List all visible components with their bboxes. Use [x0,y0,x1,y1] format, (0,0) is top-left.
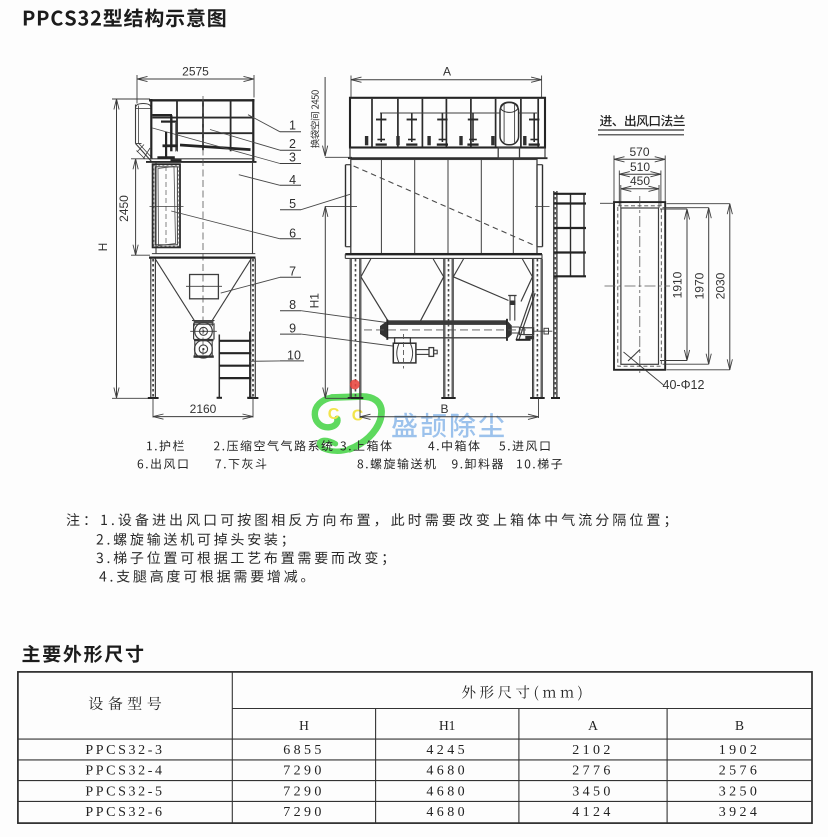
svg-text:4124: 4124 [572,805,614,820]
svg-text:H: H [299,718,309,733]
svg-text:10: 10 [287,348,301,362]
svg-text:7290: 7290 [283,764,325,779]
svg-text:4: 4 [289,173,296,187]
svg-text:3924: 3924 [719,805,761,820]
svg-text:5: 5 [289,197,296,211]
svg-text:PPCS32-5: PPCS32-5 [85,784,164,799]
svg-text:PPCS32-3: PPCS32-3 [85,743,164,758]
svg-text:PPCS32-4: PPCS32-4 [85,764,164,779]
svg-text:9: 9 [289,321,296,335]
svg-text:1: 1 [289,118,296,132]
svg-text:510: 510 [630,160,650,174]
svg-text:8: 8 [289,298,296,312]
svg-text:570: 570 [629,145,649,159]
svg-text:2450: 2450 [117,195,131,222]
svg-text:H: H [96,243,110,252]
svg-text:3450: 3450 [572,784,614,799]
svg-text:7290: 7290 [283,784,325,799]
svg-text:H1: H1 [439,718,456,733]
svg-text:7290: 7290 [283,805,325,820]
svg-text:2575: 2575 [182,64,209,78]
svg-text:7: 7 [289,264,296,278]
svg-text:4245: 4245 [426,743,468,758]
svg-text:4680: 4680 [426,784,468,799]
svg-text:2160: 2160 [190,402,217,416]
svg-text:PPCS32-6: PPCS32-6 [85,805,164,820]
svg-text:2776: 2776 [572,764,614,779]
svg-text:2576: 2576 [719,764,761,779]
svg-text:4680: 4680 [426,805,468,820]
svg-text:B: B [735,718,744,733]
svg-text:H1: H1 [308,293,322,309]
svg-text:B: B [440,402,448,416]
svg-text:1970: 1970 [692,272,706,299]
svg-text:2030: 2030 [714,272,728,299]
svg-text:4680: 4680 [426,764,468,779]
svg-text:3250: 3250 [719,784,761,799]
svg-text:2: 2 [289,137,296,151]
svg-text:A: A [443,65,451,79]
svg-text:1902: 1902 [719,743,761,758]
svg-text:2102: 2102 [572,743,614,758]
svg-text:6855: 6855 [283,743,325,758]
svg-text:A: A [588,718,598,733]
svg-text:1910: 1910 [671,271,685,298]
svg-text:C: C [328,406,340,423]
svg-text:40-Φ12: 40-Φ12 [663,378,705,392]
svg-text:450: 450 [630,174,650,188]
svg-text:6: 6 [289,226,296,240]
svg-text:3: 3 [289,150,296,164]
